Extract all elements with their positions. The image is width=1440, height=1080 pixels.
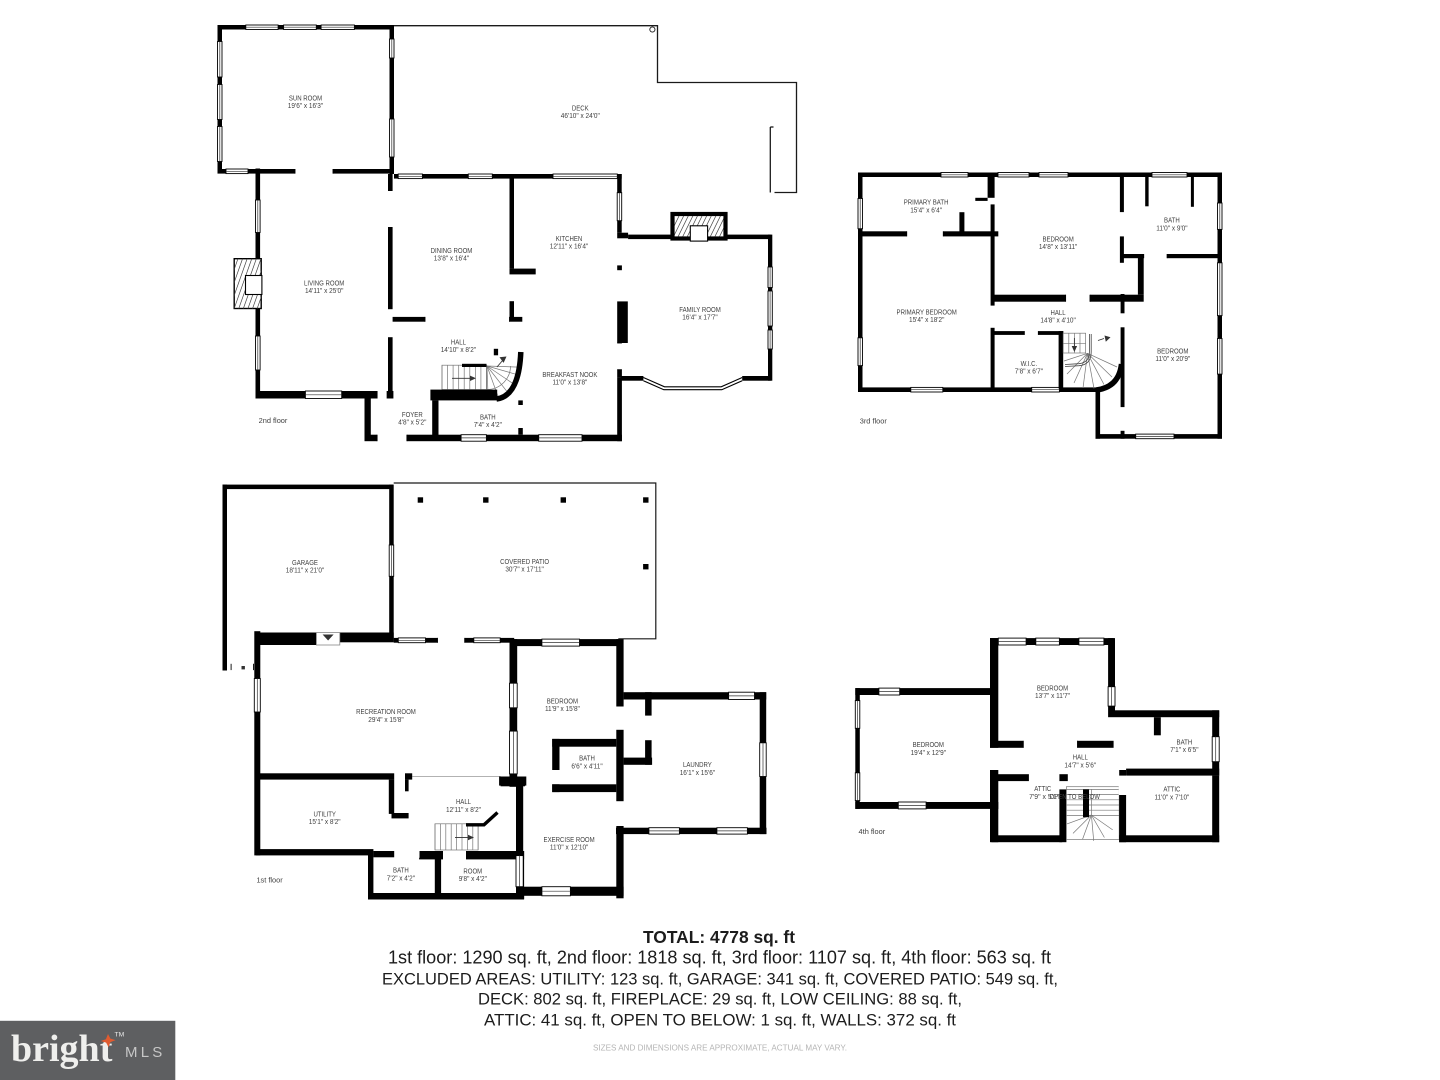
svg-text:11'0" x 13'8": 11'0" x 13'8": [552, 380, 587, 387]
svg-text:4th floor: 4th floor: [859, 827, 886, 836]
svg-text:11'0" x 12'10": 11'0" x 12'10": [550, 845, 589, 852]
svg-text:PRIMARY BEDROOM: PRIMARY BEDROOM: [897, 307, 957, 316]
svg-text:1st floor: 1290 sq. ft, 2nd fl: 1st floor: 1290 sq. ft, 2nd floor: 1818 …: [388, 948, 1051, 968]
svg-text:15'4" x 18'2": 15'4" x 18'2": [909, 317, 945, 324]
svg-text:14'8" x 13'11": 14'8" x 13'11": [1039, 244, 1078, 251]
svg-text:MLS: MLS: [125, 1044, 165, 1061]
svg-text:LIVING ROOM: LIVING ROOM: [304, 278, 344, 287]
svg-text:BATH: BATH: [480, 413, 496, 422]
svg-text:7'2" x 4'2": 7'2" x 4'2": [387, 875, 416, 882]
svg-text:OPEN TO BELOW: OPEN TO BELOW: [1049, 792, 1100, 801]
svg-text:6'6" x 4'11": 6'6" x 4'11": [571, 763, 603, 770]
svg-text:BEDROOM: BEDROOM: [1037, 684, 1068, 693]
svg-text:16'1" x 15'6": 16'1" x 15'6": [680, 770, 716, 777]
svg-text:ATTIC: 41 sq. ft, OPEN TO BELO: ATTIC: 41 sq. ft, OPEN TO BELOW: 1 sq. f…: [484, 1011, 956, 1030]
svg-text:FOYER: FOYER: [402, 410, 423, 419]
svg-text:W.I.C.: W.I.C.: [1021, 359, 1038, 368]
svg-text:13'8" x 16'4": 13'8" x 16'4": [434, 256, 470, 263]
svg-text:BATH: BATH: [579, 754, 595, 763]
svg-text:GARAGE: GARAGE: [292, 558, 318, 567]
svg-text:11'9" x 15'8": 11'9" x 15'8": [545, 706, 580, 713]
svg-text:12'11" x 8'2": 12'11" x 8'2": [446, 807, 481, 814]
svg-text:DECK: DECK: [572, 104, 589, 113]
svg-text:30'7" x 17'11": 30'7" x 17'11": [505, 567, 544, 574]
svg-text:BATH: BATH: [393, 866, 409, 875]
svg-text:19'4" x 12'9": 19'4" x 12'9": [911, 750, 947, 757]
svg-text:9'8" x 4'2": 9'8" x 4'2": [459, 876, 488, 883]
svg-text:3rd floor: 3rd floor: [860, 416, 888, 425]
svg-text:7'1" x 6'5": 7'1" x 6'5": [1170, 747, 1199, 754]
svg-text:14'7" x 5'6": 14'7" x 5'6": [1064, 762, 1096, 769]
svg-text:DINING ROOM: DINING ROOM: [431, 246, 473, 255]
svg-text:DECK: 802 sq. ft, FIREPLACE: 2: DECK: 802 sq. ft, FIREPLACE: 29 sq. ft, …: [478, 990, 962, 1009]
svg-text:14'10" x 8'2": 14'10" x 8'2": [441, 347, 477, 354]
svg-text:bright: bright: [11, 1028, 113, 1070]
svg-text:HALL: HALL: [1073, 753, 1088, 762]
svg-text:BATH: BATH: [1164, 216, 1180, 225]
svg-text:BATH: BATH: [1177, 737, 1193, 746]
svg-text:14'11" x 25'0": 14'11" x 25'0": [305, 288, 344, 295]
svg-text:1st floor: 1st floor: [256, 876, 283, 885]
svg-text:15'4" x 6'4": 15'4" x 6'4": [910, 207, 942, 214]
svg-text:12'11" x 16'4": 12'11" x 16'4": [550, 244, 589, 251]
svg-text:EXCLUDED AREAS: UTILITY: 123 s: EXCLUDED AREAS: UTILITY: 123 sq. ft, GAR…: [382, 971, 1058, 989]
svg-text:BEDROOM: BEDROOM: [913, 740, 944, 749]
svg-text:7'4" x 4'2": 7'4" x 4'2": [474, 422, 503, 429]
svg-text:HALL: HALL: [1051, 308, 1066, 317]
svg-text:29'4" x 15'8": 29'4" x 15'8": [368, 717, 404, 724]
svg-text:FAMILY ROOM: FAMILY ROOM: [679, 305, 721, 314]
svg-text:BREAKFAST NOOK: BREAKFAST NOOK: [542, 370, 597, 379]
svg-text:46'10" x 24'0": 46'10" x 24'0": [561, 113, 601, 120]
svg-text:7'8" x 6'7": 7'8" x 6'7": [1015, 369, 1044, 376]
svg-text:PRIMARY BATH: PRIMARY BATH: [904, 198, 949, 207]
svg-text:LAUNDRY: LAUNDRY: [683, 760, 712, 769]
svg-text:11'0" x 7'10": 11'0" x 7'10": [1154, 794, 1189, 801]
svg-text:BEDROOM: BEDROOM: [1042, 234, 1073, 243]
svg-text:EXERCISE ROOM: EXERCISE ROOM: [544, 835, 595, 844]
svg-text:HALL: HALL: [456, 797, 471, 806]
svg-text:SIZES AND DIMENSIONS ARE APPRO: SIZES AND DIMENSIONS ARE APPROXIMATE, AC…: [593, 1044, 847, 1053]
svg-text:TM: TM: [115, 1032, 125, 1039]
svg-text:4'8" x 5'2": 4'8" x 5'2": [398, 420, 427, 427]
svg-text:RECREATION ROOM: RECREATION ROOM: [356, 707, 416, 716]
svg-text:BEDROOM: BEDROOM: [547, 697, 578, 706]
svg-text:11'0" x 9'0": 11'0" x 9'0": [1156, 225, 1188, 232]
svg-text:UTILITY: UTILITY: [313, 810, 336, 819]
svg-text:TOTAL: 4778 sq. ft: TOTAL: 4778 sq. ft: [643, 927, 795, 947]
svg-text:SUN ROOM: SUN ROOM: [289, 94, 322, 103]
svg-text:ROOM: ROOM: [463, 866, 482, 875]
svg-text:2nd floor: 2nd floor: [259, 416, 288, 425]
svg-text:14'8" x 4'10": 14'8" x 4'10": [1040, 318, 1076, 325]
svg-text:13'7" x 11'7": 13'7" x 11'7": [1035, 693, 1070, 700]
svg-text:BEDROOM: BEDROOM: [1157, 346, 1188, 355]
svg-text:ATTIC: ATTIC: [1163, 785, 1181, 794]
svg-text:18'11" x 21'0": 18'11" x 21'0": [286, 568, 325, 575]
svg-text:KITCHEN: KITCHEN: [556, 234, 583, 243]
svg-text:11'0" x 20'9": 11'0" x 20'9": [1155, 356, 1190, 363]
svg-text:HALL: HALL: [451, 338, 466, 347]
svg-text:19'6" x 16'3": 19'6" x 16'3": [288, 103, 324, 110]
svg-text:16'4" x 17'7": 16'4" x 17'7": [682, 315, 718, 322]
svg-text:15'1" x 8'2": 15'1" x 8'2": [309, 819, 341, 826]
svg-text:COVERED PATIO: COVERED PATIO: [500, 557, 549, 566]
